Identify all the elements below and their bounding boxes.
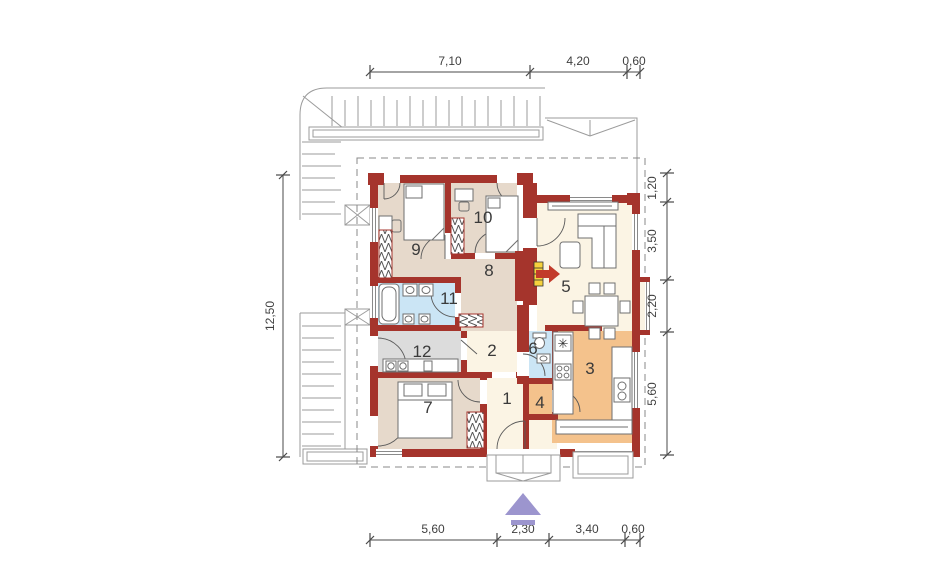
room-10-label: 10 xyxy=(474,208,493,227)
wardrobe-icon xyxy=(379,230,392,278)
room-11-label: 11 xyxy=(440,289,458,308)
dim-top-2: 4,20 xyxy=(566,54,590,68)
entry-porch xyxy=(487,455,560,481)
dimension-right: 1,20 3,50 2,20 5,60 xyxy=(645,169,674,459)
room-8-label: 8 xyxy=(484,261,493,280)
wardrobe-icon xyxy=(451,218,464,254)
bed-icon xyxy=(404,184,444,240)
tv-bench-icon xyxy=(548,202,618,210)
dimension-top: 7,10 4,20 0,60 xyxy=(366,54,646,79)
dim-bottom-4: 0,60 xyxy=(621,522,645,536)
dim-right-2: 3,50 xyxy=(645,229,659,253)
dim-top-3: 0,60 xyxy=(622,54,646,68)
dim-left-1: 12,50 xyxy=(263,301,277,331)
dim-bottom-1: 5,60 xyxy=(421,522,445,536)
room-3-label: 3 xyxy=(585,359,594,378)
dimension-bottom: 5,60 2,30 3,40 0,60 xyxy=(366,522,645,547)
armchair-icon xyxy=(560,242,580,268)
dim-right-1: 1,20 xyxy=(645,176,659,200)
floor-plan-canvas: ✳ xyxy=(0,0,940,587)
pergola-edge-planter xyxy=(309,127,543,140)
room-4-label: 4 xyxy=(535,393,544,412)
room-12-label: 12 xyxy=(413,342,432,361)
room-7-label: 7 xyxy=(423,398,432,417)
dimension-left: 12,50 xyxy=(263,171,290,461)
room-5-label: 5 xyxy=(561,277,570,296)
dim-top-1: 7,10 xyxy=(438,54,462,68)
floor-plan-page: ✳ xyxy=(0,0,940,587)
dim-right-4: 5,60 xyxy=(645,382,659,406)
dim-right-3: 2,20 xyxy=(645,294,659,318)
sink-icon xyxy=(537,354,550,363)
wardrobe-icon xyxy=(459,314,483,327)
fridge-star-icon: ✳ xyxy=(558,336,569,351)
desk-icon xyxy=(455,189,473,201)
terrace-top-right xyxy=(545,118,637,203)
room-2-label: 2 xyxy=(487,341,496,360)
room-1-label: 1 xyxy=(502,389,511,408)
entrance-arrow-icon xyxy=(505,493,541,525)
bathtub-icon xyxy=(379,284,399,324)
wardrobe-icon xyxy=(467,412,484,448)
dim-bottom-3: 3,40 xyxy=(575,522,599,536)
room-9-label: 9 xyxy=(411,240,420,259)
room-6-label: 6 xyxy=(528,339,537,358)
